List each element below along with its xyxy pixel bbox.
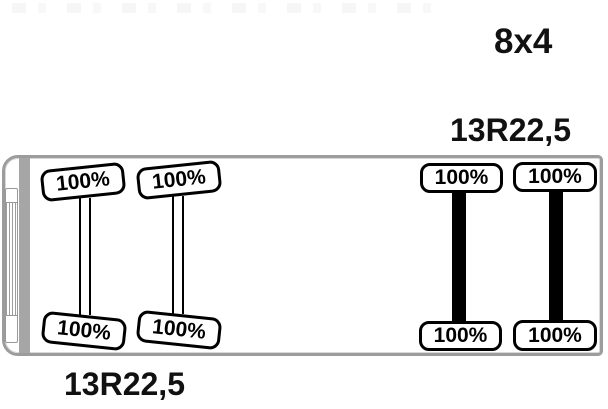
tire-rear-axle1-top: 100% bbox=[420, 163, 503, 193]
tire-rear-axle1-bottom: 100% bbox=[419, 321, 502, 351]
grille-top-cap bbox=[5, 188, 18, 203]
tire-front-axle1-bottom: 100% bbox=[41, 311, 128, 352]
tread-value: 100% bbox=[434, 324, 488, 348]
axle-line-front-1 bbox=[79, 198, 91, 315]
chassis-outline: 100% 100% 100% 100% 100% 100% 100% 100% bbox=[2, 155, 603, 356]
grille-bottom-cap bbox=[5, 315, 18, 343]
tire-rear-axle2-bottom: 100% bbox=[513, 320, 597, 351]
tire-rear-axle2-top: 100% bbox=[513, 162, 597, 192]
watermark-noise bbox=[12, 3, 432, 13]
truck-tire-diagram: 8x4 13R22,5 13R22,5 100% 100% 100% 100% … bbox=[0, 0, 608, 409]
tread-value: 100% bbox=[528, 165, 582, 189]
front-bumper-grille bbox=[5, 188, 18, 343]
tire-front-axle1-top: 100% bbox=[40, 162, 127, 203]
cab-divider-bar bbox=[19, 158, 30, 353]
tire-front-axle2-bottom: 100% bbox=[136, 310, 223, 351]
tread-value: 100% bbox=[151, 315, 207, 344]
tread-value: 100% bbox=[435, 166, 489, 190]
tire-front-axle2-top: 100% bbox=[136, 160, 223, 201]
axle-line-front-2 bbox=[172, 196, 184, 314]
drive-config-label: 8x4 bbox=[494, 22, 552, 62]
grille-stripes bbox=[5, 203, 18, 315]
axle-bar-rear-1 bbox=[452, 190, 466, 323]
tread-value: 100% bbox=[56, 316, 112, 345]
axle-bar-rear-2 bbox=[549, 189, 563, 322]
rear-tire-size-label: 13R22,5 bbox=[450, 112, 571, 149]
tread-value: 100% bbox=[528, 324, 582, 348]
tread-value: 100% bbox=[151, 165, 207, 194]
front-tire-size-label: 13R22,5 bbox=[64, 366, 185, 403]
tread-value: 100% bbox=[55, 167, 111, 196]
